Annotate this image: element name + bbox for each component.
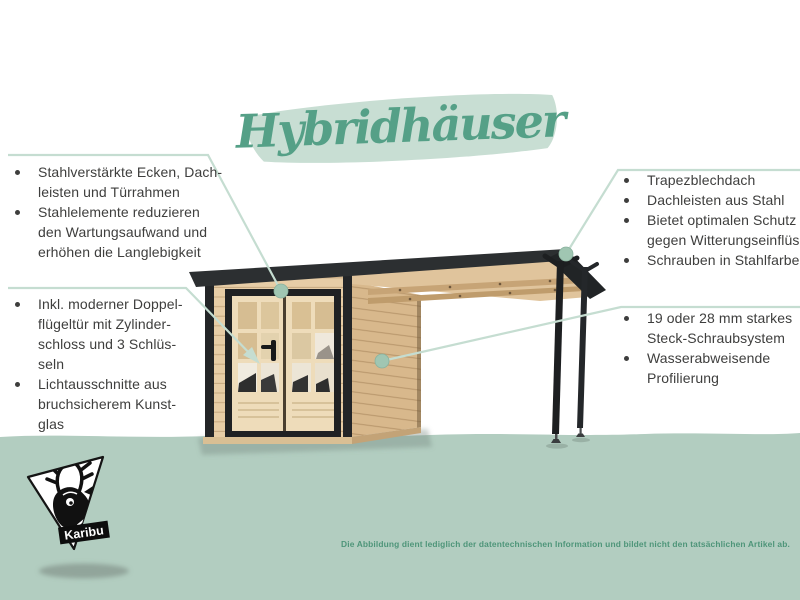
feature-line: seln xyxy=(11,354,236,374)
callout-dot-roof xyxy=(559,247,573,261)
bullet-dot xyxy=(624,198,629,203)
feature-list-right-bottom: 19 oder 28 mm starkes Steck-Schraubsyste… xyxy=(620,308,800,388)
feature-line: Dachleisten aus Stahl xyxy=(620,190,800,210)
feature-line: flügeltür mit Zylinder- xyxy=(11,314,236,334)
feature-line: glas xyxy=(11,414,236,434)
feature-line: Lichtausschnitte aus xyxy=(11,374,236,394)
corner-trim-right xyxy=(343,272,352,437)
feature-line: Steck-Schraubsystem xyxy=(620,328,800,348)
feature-line: Schrauben in Stahlfarbe xyxy=(620,250,800,270)
feature-line: Bietet optimalen Schutz xyxy=(620,210,800,230)
bullet-dot xyxy=(15,210,20,215)
callout-dot-wall xyxy=(375,354,389,368)
feature-line: leisten und Türrahmen xyxy=(11,182,236,202)
bullet-dot xyxy=(624,178,629,183)
feature-line: Trapezblechdach xyxy=(620,170,800,190)
page-title: Hybridhäuser xyxy=(229,86,571,170)
bullet-dot xyxy=(624,218,629,223)
bullet-dot xyxy=(15,170,20,175)
feature-line: schloss und 3 Schlüs- xyxy=(11,334,236,354)
post-shadow-front xyxy=(546,443,568,448)
feature-list-left-top: Stahlverstärkte Ecken, Dach- leisten und… xyxy=(11,162,236,262)
feature-list-left-bottom: Inkl. moderner Doppel- flügeltür mit Zyl… xyxy=(11,294,236,434)
infographic-page: Karibu Hybridhäuser Stahlverstärkte Ecke… xyxy=(0,0,800,600)
feature-line: den Wartungsaufwand und xyxy=(11,222,236,242)
feature-line: Profilierung xyxy=(620,368,800,388)
feature-line: gegen Witterungseinflüsse xyxy=(620,230,800,250)
shed-double-door xyxy=(225,289,341,437)
feature-line: bruchsicherem Kunst- xyxy=(11,394,236,414)
shed-base-front xyxy=(203,437,352,444)
callout-dot-door xyxy=(274,284,288,298)
disclaimer-text: Die Abbildung dient lediglich der datent… xyxy=(320,539,790,549)
bullet-dot xyxy=(15,382,20,387)
bullet-dot xyxy=(624,258,629,263)
post-shadow-rear xyxy=(572,438,590,442)
feature-line: Inkl. moderner Doppel- xyxy=(11,294,236,314)
feature-line: Stahlelemente reduzieren xyxy=(11,202,236,222)
feature-line: Stahlverstärkte Ecken, Dach- xyxy=(11,162,236,182)
bullet-dot xyxy=(624,356,629,361)
bullet-dot xyxy=(15,302,20,307)
feature-line: Wasserabweisende xyxy=(620,348,800,368)
feature-list-right-top: Trapezblechdach Dachleisten aus Stahl Bi… xyxy=(620,170,800,270)
feature-line: 19 oder 28 mm starkes xyxy=(620,308,800,328)
bullet-dot xyxy=(624,316,629,321)
feature-line: erhöhen die Langlebigkeit xyxy=(11,242,236,262)
